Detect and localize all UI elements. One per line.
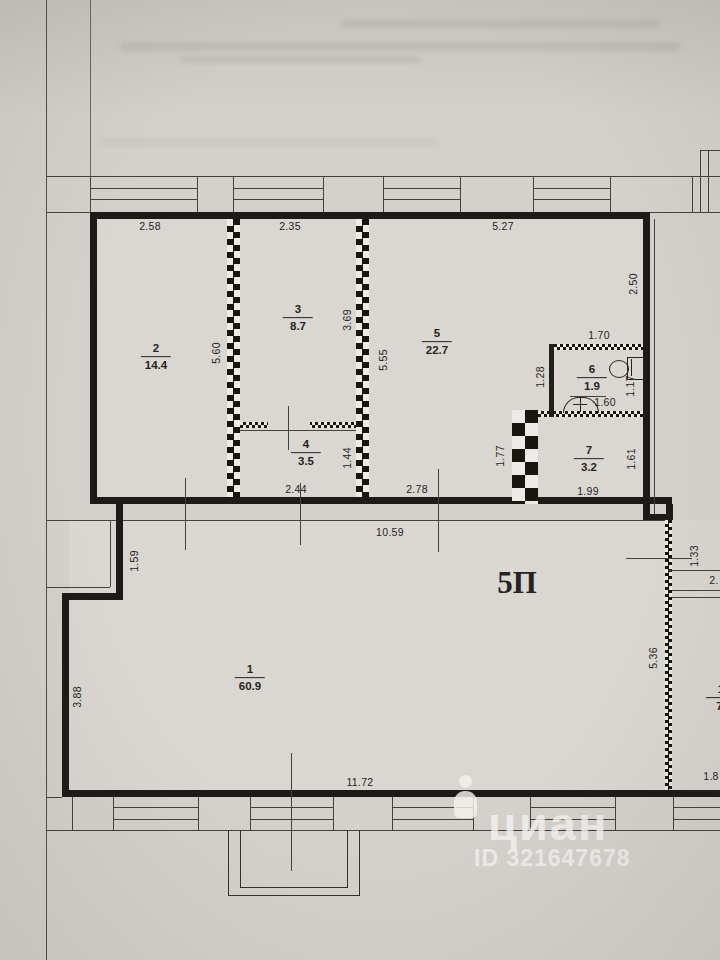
dimension-label: 1.44	[341, 447, 353, 469]
room-label-adjacent: 1 7.	[706, 682, 720, 714]
dimension-label: 1.17	[624, 375, 636, 397]
room-area: 22.7	[426, 343, 448, 358]
extension-line	[288, 406, 289, 450]
dimension-label: 1.61	[625, 448, 637, 470]
room-area: 60.9	[239, 679, 261, 694]
room-area: 14.4	[145, 358, 167, 373]
watermark-brand-text: циан	[488, 796, 608, 851]
room-label-6: 6 1.9	[577, 362, 607, 394]
room-label-1: 1 60.9	[235, 662, 265, 694]
neighbour-structure-line	[700, 150, 720, 151]
dimension-label: 3.69	[341, 309, 353, 331]
window-top-2	[233, 199, 323, 200]
room-number: 4	[291, 437, 321, 453]
notch-line	[110, 520, 111, 587]
window-top-1	[90, 188, 197, 189]
apartment-wall-right	[643, 219, 650, 504]
dimension-label: 2.50	[627, 273, 639, 295]
bleedthrough-streak	[100, 138, 440, 146]
dimension-label: 1.70	[588, 329, 610, 341]
room-area: 1.9	[584, 379, 600, 394]
wall-pier-line	[383, 176, 384, 212]
adjacent-unit-line	[668, 570, 720, 571]
partition-checkered-room3-5	[356, 219, 369, 497]
wall-pier-line	[233, 176, 234, 212]
room-number: 5	[422, 326, 452, 342]
paper-edge-line	[46, 0, 47, 960]
wall-pier-line	[673, 797, 674, 830]
room-label-7: 7 3.2	[574, 443, 604, 475]
room-area: 3.5	[298, 454, 314, 469]
window-top-1	[90, 199, 197, 200]
window-bottom-5	[673, 819, 720, 820]
room-label-3: 3 8.7	[283, 302, 313, 334]
adjacent-unit-wall-line	[672, 597, 720, 598]
wall-pier-line	[113, 797, 114, 830]
room-area: 3.2	[581, 460, 597, 475]
wall-pier-line	[692, 176, 693, 212]
outer-wall-line	[46, 797, 62, 798]
room-number: 1	[235, 662, 265, 678]
bleedthrough-streak	[120, 42, 680, 51]
room-label-2: 2 14.4	[141, 341, 171, 373]
floor-plan-photo: 2 14.4 3 8.7 4 3.5 5 22.7 6 1.9 7 3.2 1 …	[0, 0, 720, 960]
window-top-4	[533, 199, 610, 200]
room-number: 7	[574, 443, 604, 459]
unit-number-label: 5П	[497, 565, 537, 601]
dimension-label: 5.27	[492, 220, 514, 232]
window-bottom-5	[673, 807, 720, 808]
dimension-label: 1.8	[703, 770, 719, 782]
room-area: 8.7	[290, 319, 306, 334]
dimension-label: 10.59	[376, 526, 404, 538]
wall-pier-line	[333, 797, 334, 830]
bleedthrough-streak	[180, 56, 420, 63]
room-area: 7.	[716, 699, 720, 714]
dimension-label: 3.88	[71, 686, 83, 708]
window-top-2	[233, 188, 323, 189]
dimension-label: 2.44	[285, 483, 307, 495]
balcony-inner-line	[240, 830, 348, 888]
partition-checkered-right-wall	[665, 520, 672, 790]
window-bottom-1	[113, 819, 198, 820]
room6-left-wall	[549, 344, 554, 417]
dimension-label: 1.33	[688, 545, 700, 567]
room-label-5: 5 22.7	[422, 326, 452, 358]
neighbour-structure-line	[700, 150, 701, 212]
window-bottom-2	[250, 807, 333, 808]
dimension-label: 2.	[709, 574, 718, 586]
dimension-label: 2.58	[139, 220, 161, 232]
lower-unit-wall-step	[62, 593, 123, 600]
wall-pier-line	[323, 176, 324, 212]
dimension-label: 2.78	[406, 483, 428, 495]
wall-pier-line	[72, 797, 73, 830]
dimension-label: 11.72	[347, 776, 374, 788]
door-threshold-line	[240, 430, 356, 431]
partition-checkered-room7	[512, 410, 538, 504]
cian-person-icon	[459, 775, 472, 788]
window-bottom-3	[392, 819, 473, 820]
sink-icon	[573, 404, 587, 405]
window-top-3	[383, 188, 460, 189]
room-number: 3	[283, 302, 313, 318]
neighbour-wall-line	[654, 219, 655, 514]
dimension-label: 5.60	[210, 342, 222, 364]
dimension-label: 2.35	[279, 220, 301, 232]
extension-line	[185, 478, 186, 550]
window-bottom-1	[113, 807, 198, 808]
dimension-label: 5.55	[377, 349, 389, 371]
wall-pier-line	[250, 797, 251, 830]
wall-pier-line	[197, 176, 198, 212]
dimension-label: 1.28	[534, 366, 546, 388]
window-top-3	[383, 199, 460, 200]
dimension-label: 5.36	[647, 647, 659, 669]
apartment-wall-middle	[90, 497, 672, 504]
adjacent-unit-wall-line	[672, 590, 720, 591]
building-wall-bottom	[62, 790, 720, 797]
partition-checkered-room2-3	[227, 219, 240, 497]
dimension-label: 1.60	[594, 396, 616, 408]
lower-unit-wall-left	[62, 593, 69, 797]
bleedthrough-streak	[340, 20, 660, 28]
dimension-label: 1.99	[577, 485, 599, 497]
toilet-icon	[631, 359, 632, 376]
dimension-label: 1.77	[494, 445, 506, 467]
outer-wall-line	[46, 830, 720, 831]
wall-pier-line	[533, 176, 534, 212]
room-number: 6	[577, 362, 607, 378]
wall-pier-line	[392, 797, 393, 830]
dimension-label: 1.59	[128, 550, 140, 572]
neighbour-structure-line	[708, 150, 709, 212]
cian-person-icon	[454, 791, 477, 818]
window-top-4	[533, 188, 610, 189]
wall-pier-line	[610, 176, 611, 212]
lower-unit-wall-left-upper	[116, 497, 123, 600]
wall-pier-line	[615, 797, 616, 830]
room-number: 1	[706, 682, 720, 698]
wall-pier-line	[90, 176, 91, 212]
partition-checkered-room6-top	[551, 344, 643, 350]
room-label-4: 4 3.5	[291, 437, 321, 469]
lower-unit-top-line	[46, 520, 665, 521]
wall-pier-line	[198, 797, 199, 830]
building-outline-line	[90, 0, 91, 176]
wall-pier-line	[460, 176, 461, 212]
notch-line	[46, 587, 110, 588]
lower-unit-floor	[69, 520, 665, 790]
apartment-wall-top	[90, 212, 650, 219]
extension-line	[438, 469, 439, 552]
window-bottom-2	[250, 819, 333, 820]
extension-line	[626, 558, 692, 559]
room-number: 2	[141, 341, 171, 357]
watermark-id-text: ID 321647678	[474, 845, 631, 872]
upper-unit-floor	[97, 219, 643, 497]
apartment-wall-left	[90, 219, 97, 504]
